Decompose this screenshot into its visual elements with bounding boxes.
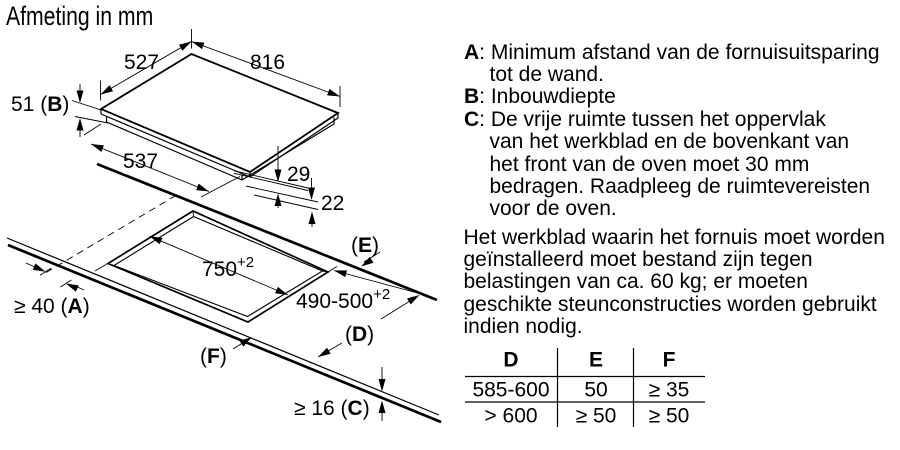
svg-text:537: 537 <box>123 150 158 173</box>
svg-text:≥ 35: ≥ 35 <box>649 379 690 402</box>
svg-text:51 (B): 51 (B) <box>11 93 69 116</box>
svg-text:≥ 40 (A): ≥ 40 (A) <box>14 295 90 318</box>
svg-text:50: 50 <box>584 379 607 402</box>
svg-text:816: 816 <box>250 51 285 74</box>
svg-text:> 600: > 600 <box>484 405 537 428</box>
svg-text:≥ 50: ≥ 50 <box>649 405 690 428</box>
svg-text:29: 29 <box>287 163 310 186</box>
svg-text:D: D <box>503 349 518 372</box>
svg-text:585-600: 585-600 <box>472 379 549 402</box>
svg-text:22: 22 <box>321 192 344 215</box>
svg-text:527: 527 <box>124 51 159 74</box>
svg-text:≥ 16 (C): ≥ 16 (C) <box>294 397 370 420</box>
svg-text:F: F <box>663 349 676 372</box>
svg-text:≥ 50: ≥ 50 <box>576 405 617 428</box>
svg-text:490-500+2: 490-500+2 <box>296 286 390 313</box>
svg-text:(E): (E) <box>351 234 379 257</box>
svg-text:(D): (D) <box>345 323 374 346</box>
svg-text:E: E <box>589 349 603 372</box>
svg-text:(F): (F) <box>200 345 227 368</box>
